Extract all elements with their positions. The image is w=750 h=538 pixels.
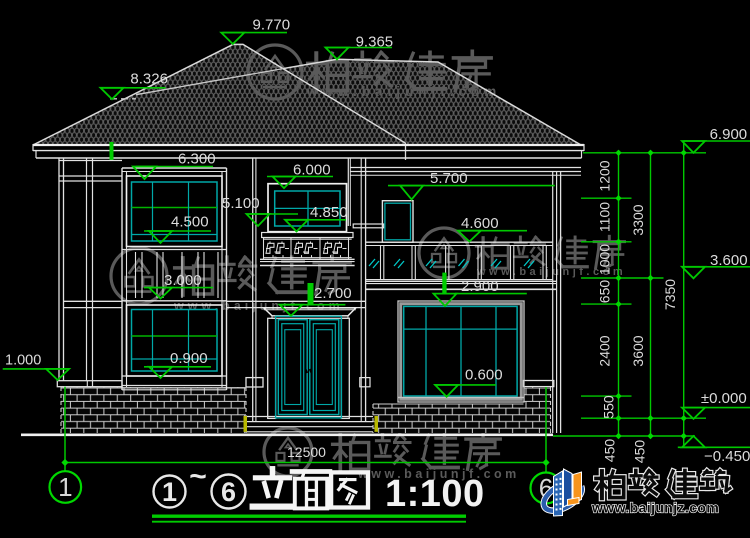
svg-text:1.000: 1.000 xyxy=(5,353,41,369)
svg-text:6.900: 6.900 xyxy=(710,126,748,143)
svg-text:1000: 1000 xyxy=(597,244,613,275)
svg-text:3.600: 3.600 xyxy=(710,252,748,269)
svg-text:www.baijunjz.com: www.baijunjz.com xyxy=(591,500,719,516)
svg-text:1: 1 xyxy=(58,472,72,502)
svg-text:2.700: 2.700 xyxy=(314,285,352,302)
svg-text:8.326: 8.326 xyxy=(130,71,168,88)
svg-text:1:100: 1:100 xyxy=(385,473,485,515)
svg-text:4.850: 4.850 xyxy=(310,204,348,221)
svg-text:4.500: 4.500 xyxy=(171,214,209,231)
svg-text:−0.450: −0.450 xyxy=(704,448,750,465)
svg-text:5.700: 5.700 xyxy=(430,170,468,187)
svg-text:6.300: 6.300 xyxy=(178,151,216,168)
svg-text:0.600: 0.600 xyxy=(465,367,503,384)
svg-text:1200: 1200 xyxy=(597,160,613,191)
svg-text:5.100: 5.100 xyxy=(222,195,260,212)
svg-text:450: 450 xyxy=(602,439,618,463)
svg-text:www.baijunjf.com: www.baijunjf.com xyxy=(306,84,501,99)
svg-text:0.900: 0.900 xyxy=(170,350,208,367)
svg-text:650: 650 xyxy=(597,280,613,304)
svg-text:~: ~ xyxy=(189,460,207,493)
svg-text:2.900: 2.900 xyxy=(461,278,499,295)
svg-text:2400: 2400 xyxy=(597,335,613,366)
svg-text:550: 550 xyxy=(601,395,617,419)
svg-text:6: 6 xyxy=(221,477,236,507)
svg-text:4.600: 4.600 xyxy=(461,215,499,232)
svg-text:±0.000: ±0.000 xyxy=(701,390,747,407)
svg-text:12500: 12500 xyxy=(287,444,326,460)
svg-text:3300: 3300 xyxy=(630,204,646,235)
svg-text:3.000: 3.000 xyxy=(164,272,202,289)
svg-text:9.770: 9.770 xyxy=(253,17,291,34)
svg-text:6.000: 6.000 xyxy=(293,162,331,179)
svg-text:3600: 3600 xyxy=(630,335,646,366)
svg-text:450: 450 xyxy=(632,440,648,464)
svg-text:1: 1 xyxy=(162,477,177,507)
svg-text:7350: 7350 xyxy=(662,279,678,310)
svg-text:1100: 1100 xyxy=(597,202,613,232)
svg-text:9.365: 9.365 xyxy=(356,34,394,51)
